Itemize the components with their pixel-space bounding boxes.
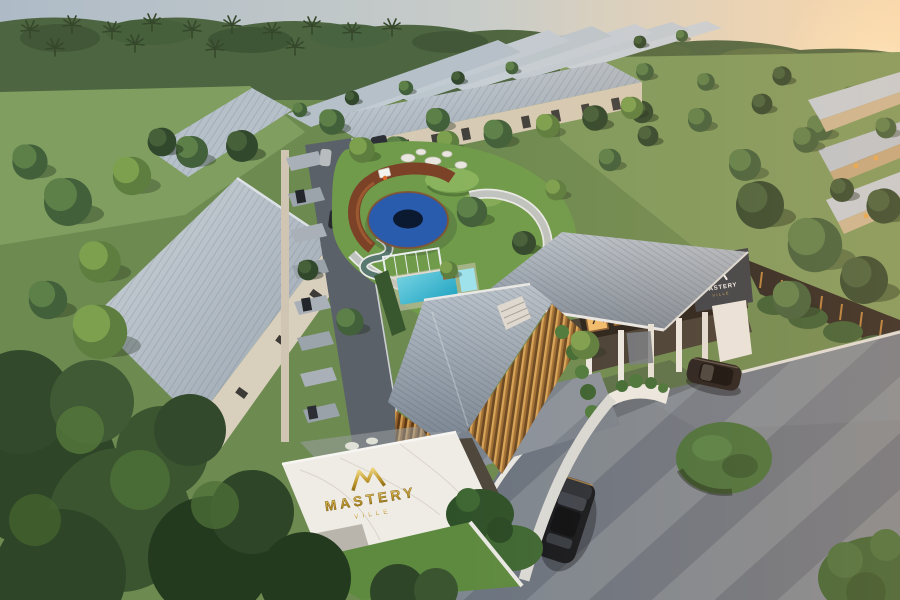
trampoline-center [393,210,423,229]
aerial-rendering: MASTERY VILLE [0,0,900,600]
rendering-canvas: MASTERY VILLE [0,0,900,600]
warm-light-overlay [450,0,900,600]
